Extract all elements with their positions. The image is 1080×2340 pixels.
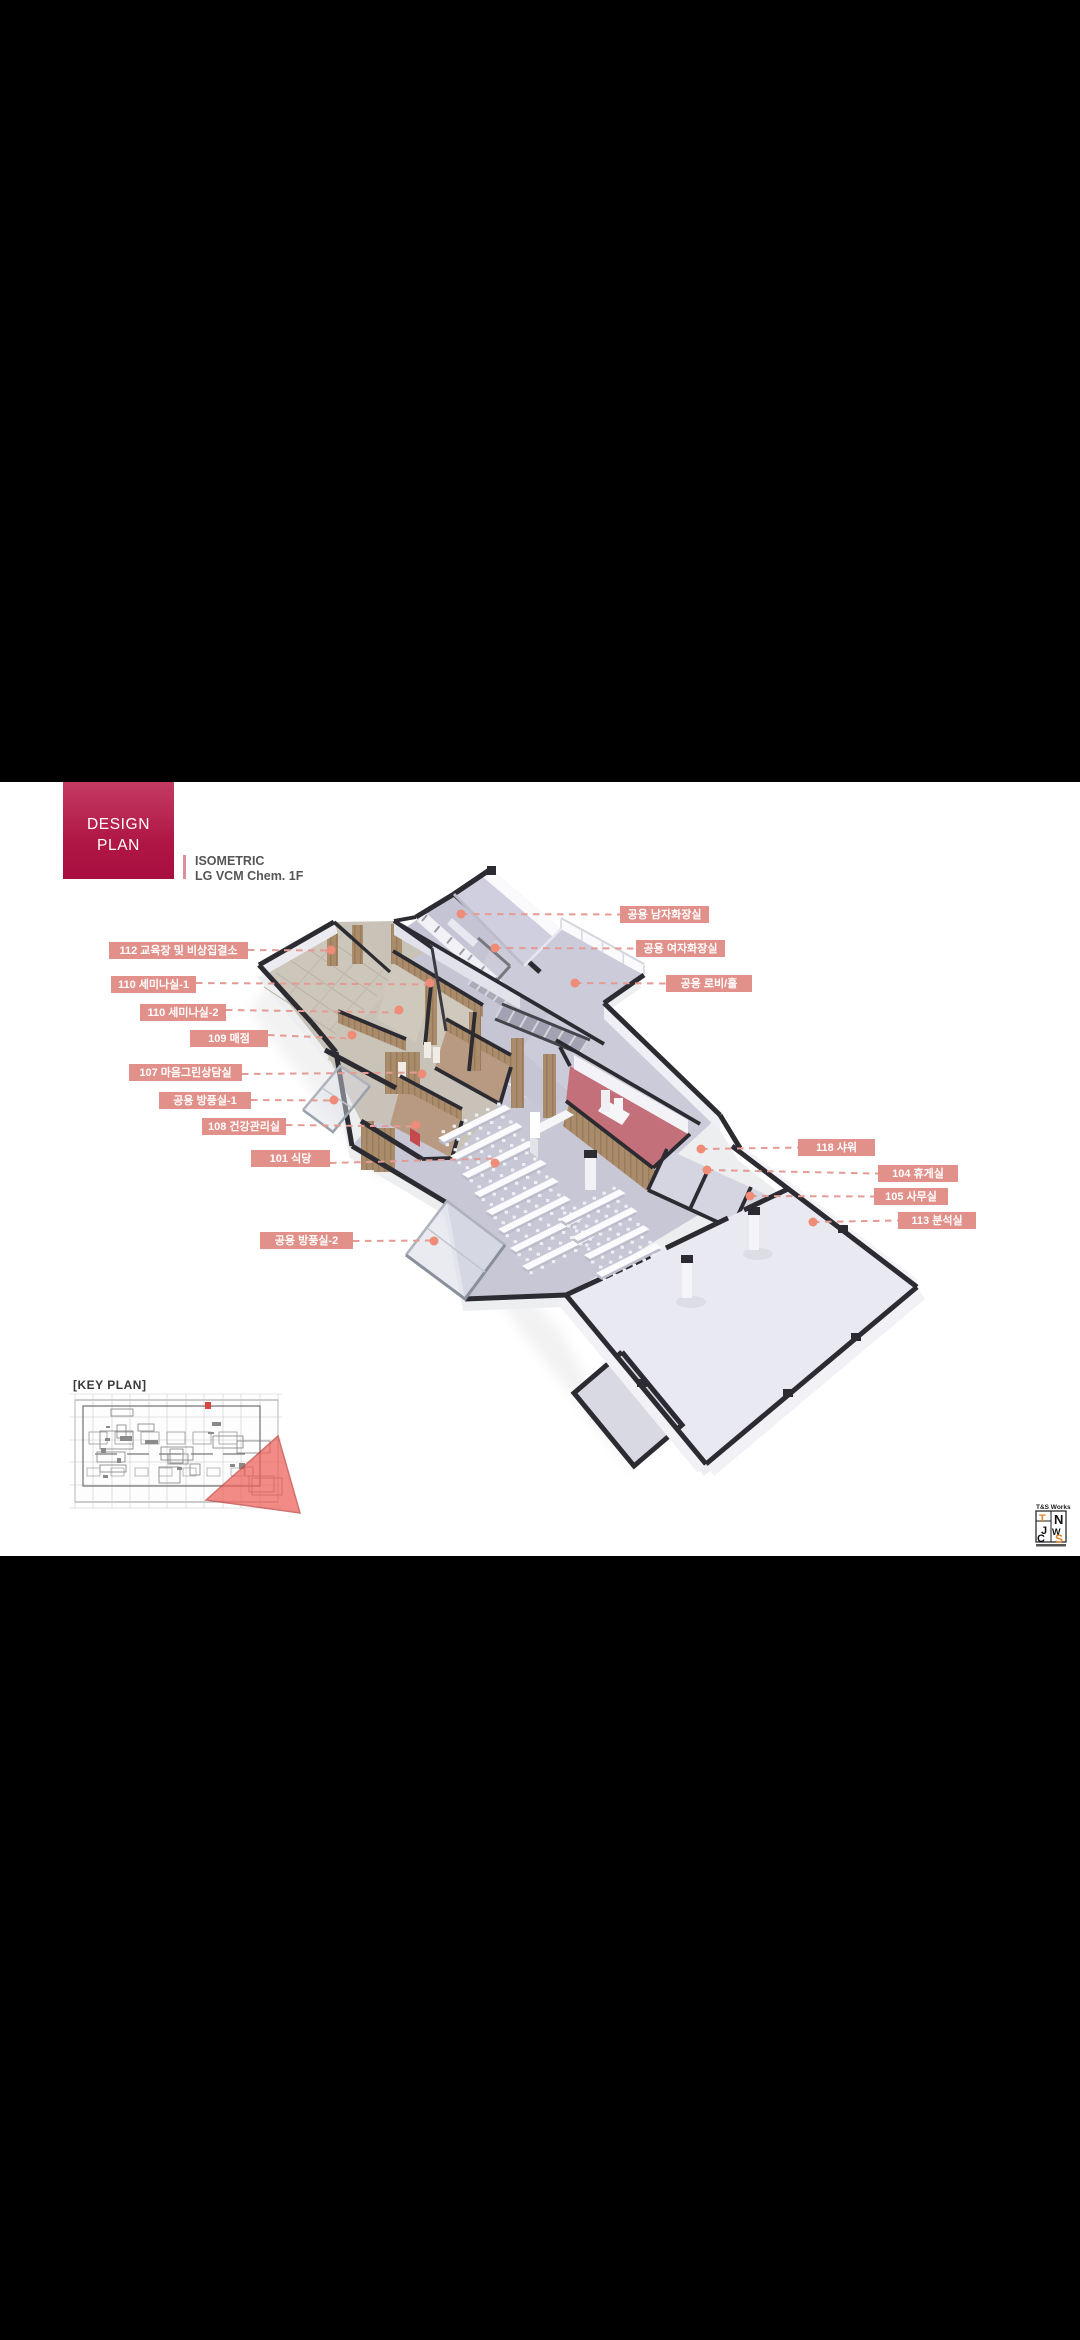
svg-text:107 마음그린상담실: 107 마음그린상담실 (139, 1065, 231, 1079)
svg-text:109 매점: 109 매점 (208, 1031, 250, 1045)
svg-text:S: S (1055, 1532, 1063, 1546)
svg-text:C: C (1037, 1533, 1045, 1545)
svg-text:공용 남자화장실: 공용 남자화장실 (628, 907, 702, 921)
svg-text:104 휴게실: 104 휴게실 (892, 1166, 944, 1180)
svg-text:101 식당: 101 식당 (270, 1151, 312, 1165)
svg-text:112 교육장 및 비상집결소: 112 교육장 및 비상집결소 (120, 943, 238, 957)
svg-text:113 분석실: 113 분석실 (911, 1213, 962, 1227)
svg-text:N: N (1054, 1512, 1063, 1527)
svg-text:108 건강관리실: 108 건강관리실 (208, 1119, 280, 1133)
svg-text:공용 방풍실-1: 공용 방풍실-1 (173, 1093, 236, 1107)
svg-text:공용 여자화장실: 공용 여자화장실 (644, 941, 718, 955)
svg-text:공용 로비/홀: 공용 로비/홀 (681, 976, 738, 990)
svg-text:T: T (1039, 1513, 1046, 1525)
svg-text:105 사무실: 105 사무실 (885, 1189, 937, 1203)
svg-text:T&S Works: T&S Works (1036, 1504, 1071, 1511)
svg-text:118 샤워: 118 샤워 (816, 1140, 857, 1154)
svg-text:110 세미나실-1: 110 세미나실-1 (118, 977, 189, 991)
svg-text:공용 방풍실-2: 공용 방풍실-2 (275, 1233, 338, 1247)
svg-text:110 세미나실-2: 110 세미나실-2 (147, 1005, 218, 1019)
